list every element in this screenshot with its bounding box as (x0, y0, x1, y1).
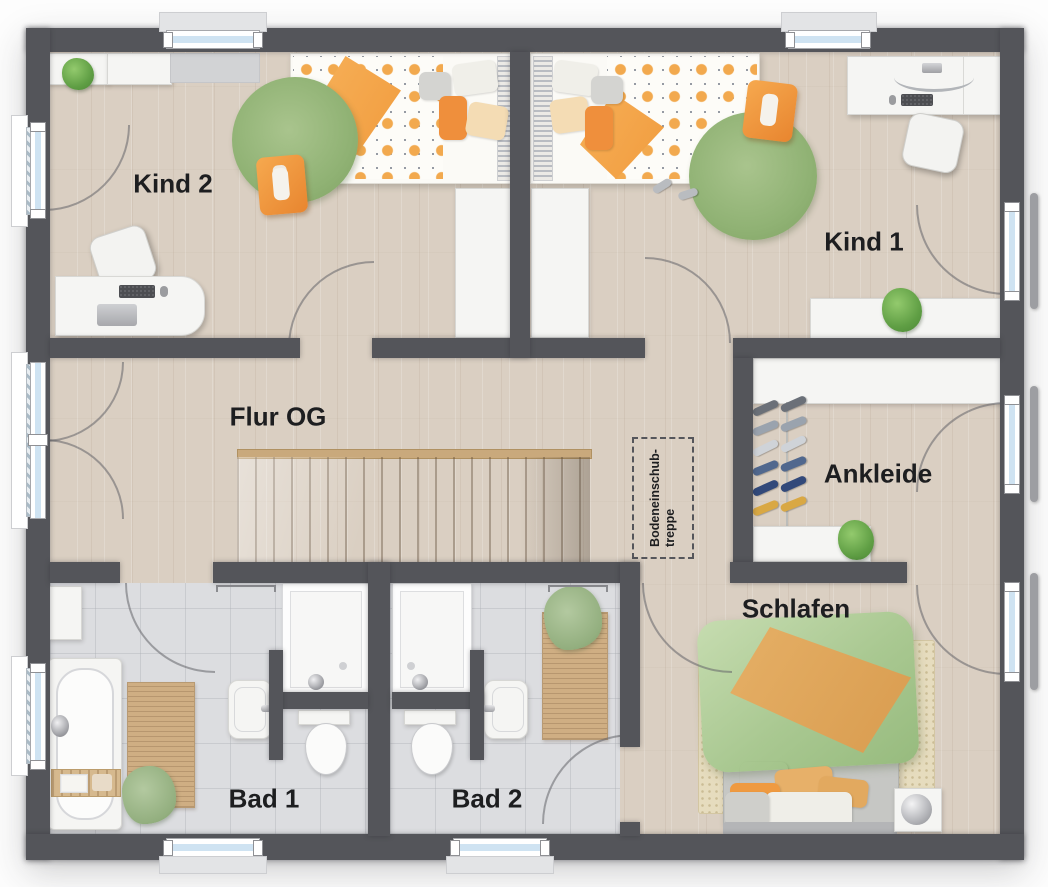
kind1-monitor-stand (922, 63, 942, 73)
bad2-bottom-sill (446, 856, 554, 874)
bad1-caddy-book (60, 774, 88, 793)
bad1-shower (282, 583, 370, 696)
room-label-kind1: Kind 1 (824, 227, 903, 258)
loft-hatch-label: Bodeneinschub- treppe (648, 449, 678, 547)
kind2-window-cap-l (163, 32, 173, 48)
wall-kids-divider (510, 52, 530, 358)
kind1-mouse (889, 95, 896, 105)
bad2-bottom-cap-r (540, 840, 550, 856)
kind2-window (166, 30, 260, 49)
bad1-bottom-cap-l (163, 840, 173, 856)
kind2-pillow-orange (439, 96, 467, 140)
room-label-bad1: Bad 1 (229, 784, 300, 815)
bad2-shower-faucet (412, 674, 428, 690)
bad2-bottom-cap-l (450, 840, 460, 856)
bad1-bottom-window (166, 838, 260, 857)
kind2-left-cap-b (30, 209, 46, 219)
wall-flur-baeder (213, 562, 640, 583)
kind1-fd-cap-b (1004, 291, 1020, 301)
kind1-keyboard (901, 94, 933, 106)
kind2-left-leaf (30, 125, 46, 217)
loft-hatch-box: Bodeneinschub- treppe (632, 437, 694, 559)
bad1-towel-rail (216, 585, 276, 587)
bad2-bottom-window (453, 838, 547, 857)
kind2-keyboard (119, 285, 155, 298)
kind2-pillow-dotted (464, 101, 509, 141)
wall-flur-bad1-left (50, 562, 120, 583)
bad1-bathtub-inner (56, 668, 114, 820)
room-label-schlafen: Schlafen (742, 594, 850, 625)
kind1-plant (882, 288, 922, 332)
kind1-floor-cushion (742, 79, 799, 143)
bad1-bottom-sill (159, 856, 267, 874)
schlafen-fd-cap-t (1004, 582, 1020, 592)
bad1-left-cap-b (30, 760, 46, 770)
room-label-flur: Flur OG (230, 402, 327, 433)
bad1-caddy-towel (92, 774, 112, 791)
flur-left-handle (28, 434, 48, 446)
bad1-bottom-cap-r (253, 840, 263, 856)
bad2-partition-v (470, 650, 484, 760)
flur-left-leaf-bottom (30, 441, 46, 519)
kind1-window-cap-r (861, 32, 871, 48)
kind1-desk (847, 56, 1001, 115)
kind1-desk-chair (900, 111, 966, 175)
kind1-window-sill (781, 12, 877, 32)
kind2-window-cap-r (253, 32, 263, 48)
wall-kids-flur-left (50, 338, 300, 358)
bad1-partition-v (269, 650, 283, 760)
room-label-bad2: Bad 2 (452, 784, 523, 815)
kind1-doll (759, 93, 779, 127)
room-label-kind2: Kind 2 (133, 169, 212, 200)
kind1-wardrobe (531, 188, 589, 338)
kind1-window (788, 30, 870, 49)
kind2-floor-cushion (256, 154, 309, 216)
kind2-window-sill (159, 12, 267, 32)
kind1-pillow-orange (585, 106, 613, 150)
bad2-towel-rail (548, 585, 608, 587)
bad2-shower-drain (407, 662, 415, 670)
bad1-sink (228, 680, 272, 739)
ankleide-balcony-railing (1030, 386, 1038, 502)
loft-hatch-line1: Bodeneinschub- (648, 449, 663, 547)
bad2-sink-basin (492, 687, 524, 732)
schlafen-pillow-gray (725, 792, 769, 826)
wall-ankleide-left (733, 358, 753, 568)
bad2-sink (484, 680, 528, 739)
bad2-towel (544, 586, 602, 650)
wall-kind1-ankleide (733, 338, 1000, 358)
kind2-shelf2 (107, 53, 172, 85)
kind2-plant (62, 58, 94, 90)
kind2-pillow-white (451, 59, 499, 97)
ankleide-fd-cap-b (1004, 484, 1020, 494)
bad1-cabinet (48, 586, 82, 640)
bad1-towel (122, 766, 176, 824)
ankleide-french-door (1004, 398, 1020, 492)
wall-bad1-bad2 (368, 562, 390, 836)
kind1-mattress (533, 56, 553, 181)
ankleide-plant (838, 520, 874, 560)
bad1-left-window (30, 666, 46, 766)
kind2-desk (55, 276, 205, 336)
bad1-bathtub (48, 658, 122, 830)
bad1-partition-h (269, 692, 368, 709)
wall-ankleide-schlafen (730, 562, 907, 583)
loft-hatch-line2: treppe (663, 449, 678, 547)
wall-kids-flur-mid (372, 338, 645, 358)
schlafen-lamp (901, 794, 932, 825)
flur-left-leaf-top (30, 362, 46, 440)
bad2-sink-faucet (483, 705, 495, 712)
kind2-monitor (97, 304, 137, 326)
room-label-ankleide: Ankleide (824, 459, 932, 490)
wall-bad2-schlafen-lower (620, 822, 640, 836)
bad1-tub-caddy (51, 769, 121, 797)
kind1-french-door (1004, 205, 1020, 299)
bad2-shower (392, 583, 472, 696)
kind2-left-cap-t (30, 122, 46, 132)
kind1-pillow-gray (591, 76, 623, 104)
kind2-mouse (160, 286, 168, 297)
bad1-tub-faucet (51, 715, 69, 737)
kind1-window-cap-l (785, 32, 795, 48)
ankleide-wardrobe (753, 358, 1002, 404)
schlafen-fd-cap-b (1004, 672, 1020, 682)
bad1-shower-faucet (308, 674, 324, 690)
schlafen-french-door (1004, 585, 1020, 680)
wall-bad2-schlafen-upper (620, 562, 640, 747)
stairwell-shadow (520, 457, 590, 562)
kind1-fd-cap-t (1004, 202, 1020, 212)
kind1-balcony-railing (1030, 193, 1038, 309)
floorplan-stage: Bodeneinschub- treppe (0, 0, 1048, 887)
bad1-shower-drain (339, 662, 347, 670)
bad1-left-cap-t (30, 663, 46, 673)
ankleide-fd-cap-t (1004, 395, 1020, 405)
kind2-wardrobe (455, 188, 512, 338)
schlafen-balcony-railing (1030, 573, 1038, 690)
kind2-doll (272, 167, 291, 200)
